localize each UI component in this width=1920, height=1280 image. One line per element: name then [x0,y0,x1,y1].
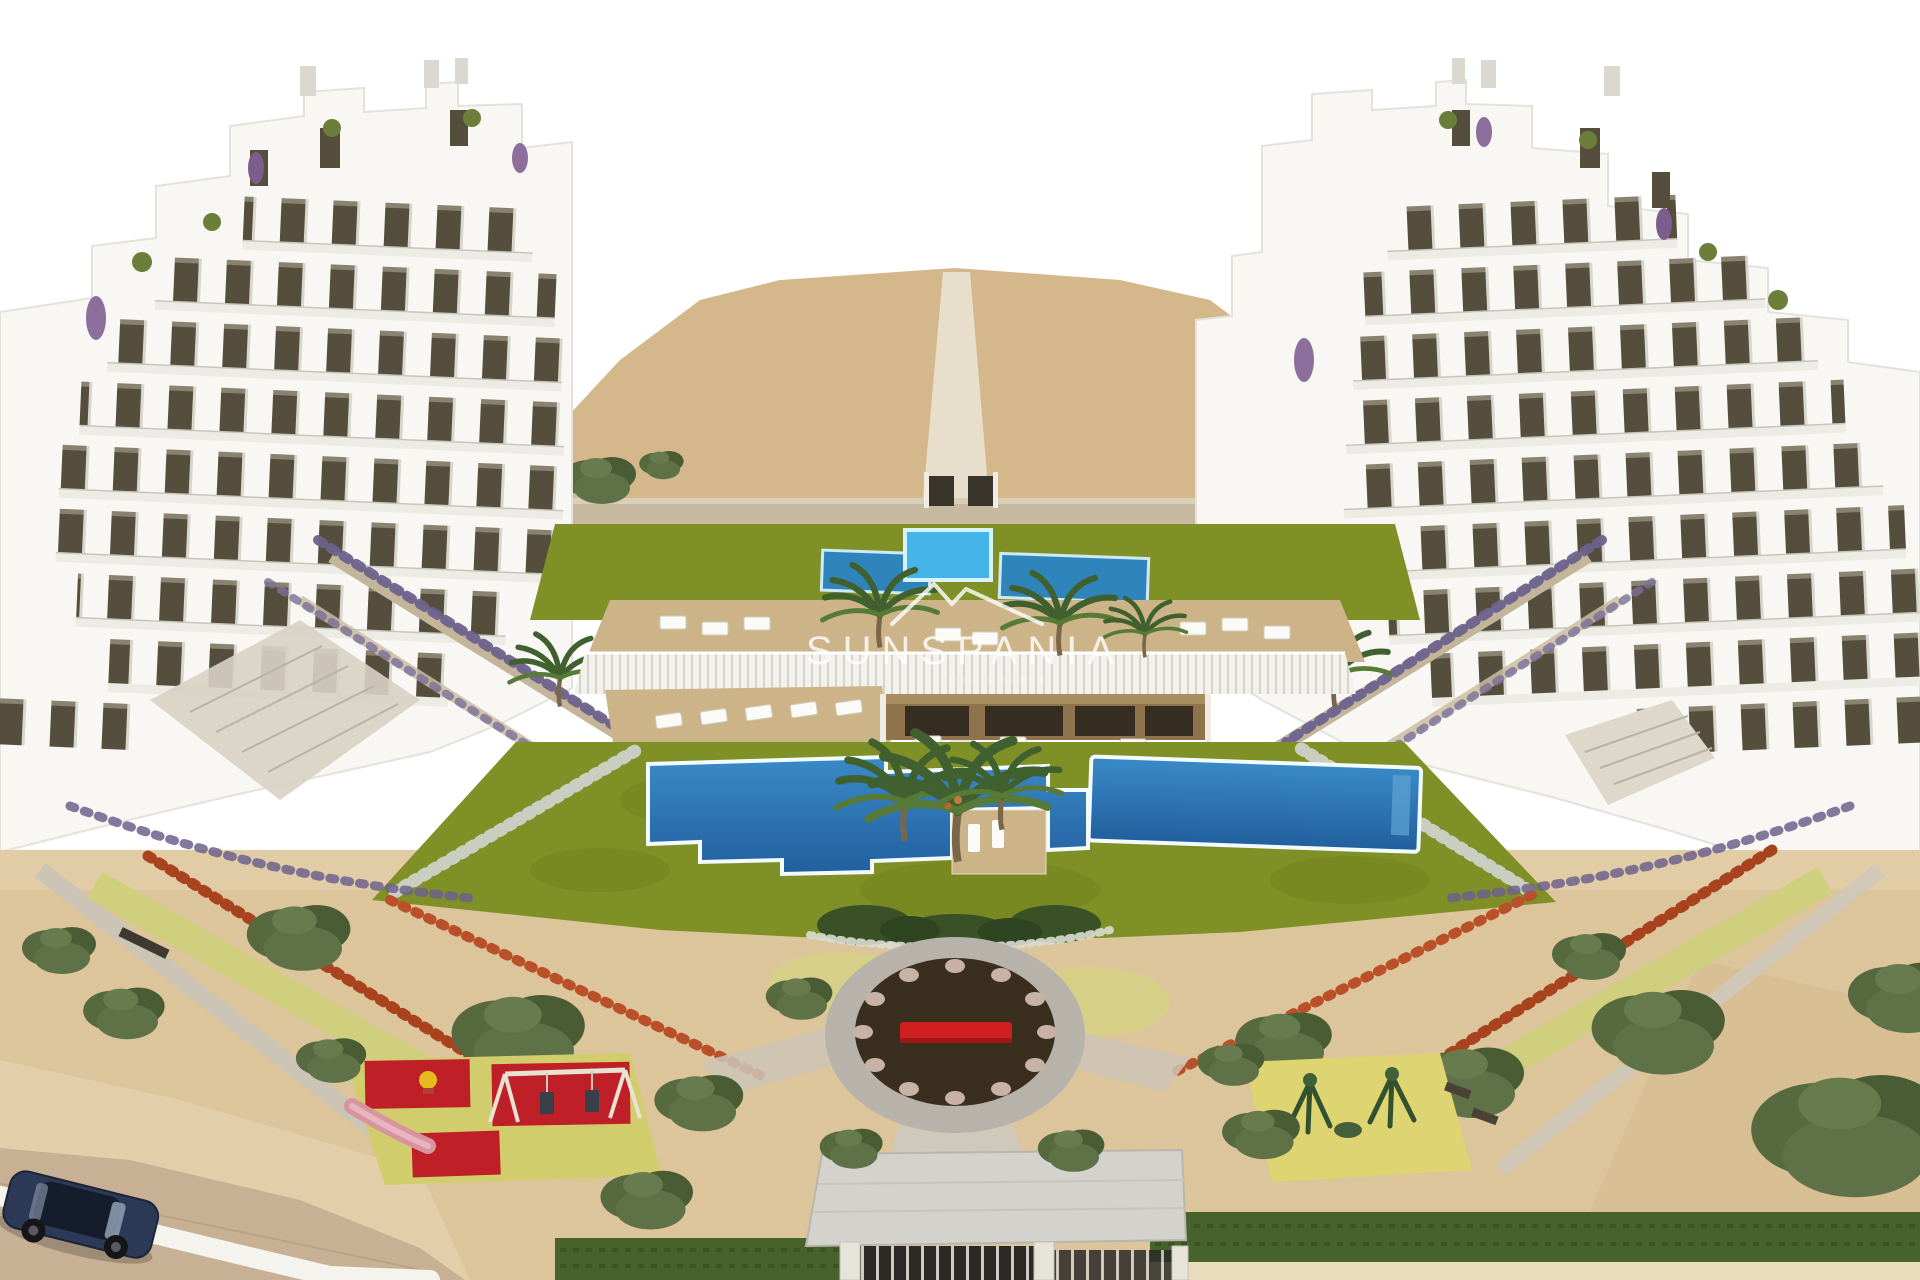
hedge-left [555,1238,845,1280]
main-pool-right [1088,756,1421,851]
hill-gate-right [968,476,994,506]
circular-plaza [825,937,1085,1133]
entrance-gate [856,1246,1036,1280]
hedge-right [1150,1212,1920,1264]
hill-gate-left [928,476,954,506]
watermark-brand: SUNSPANIA [806,629,1124,673]
watermark-tagline: real estate [940,671,1049,687]
gate-pillar [840,1242,860,1280]
gate-pillar [1172,1246,1188,1280]
kids-pool [905,530,991,580]
play-mat-spring [365,1059,471,1109]
sun-lounger [968,824,980,852]
pool-steps [1391,775,1411,836]
pergola-openings [905,706,1193,736]
gate-pillar [1034,1242,1054,1280]
aerial-render-residential-complex: SUNSPANIA real estate [0,0,1920,1280]
entrance-gate-right [1052,1250,1172,1280]
perimeter-path [1150,1262,1920,1280]
